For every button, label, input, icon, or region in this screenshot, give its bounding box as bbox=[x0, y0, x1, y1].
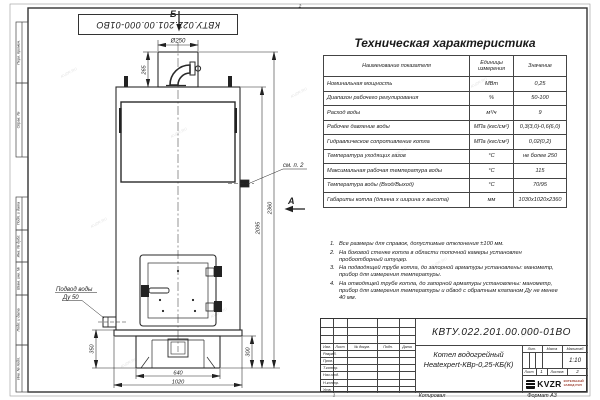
scale-value: 1:10 bbox=[562, 352, 588, 368]
svg-text:Инв. № подл.: Инв. № подл. bbox=[16, 357, 20, 380]
note-item: 4.На отводящей трубе котла, до запорной … bbox=[330, 281, 563, 302]
door-hinge-top bbox=[206, 268, 214, 276]
kvzr-logo-icon bbox=[526, 380, 535, 389]
col-data: Дата bbox=[399, 343, 415, 350]
note-item: 2.На боковой стенке котла в области топо… bbox=[330, 250, 563, 264]
sheets-value: 2 bbox=[567, 368, 588, 375]
col-docnum: № докум. bbox=[347, 343, 377, 350]
table-row: Максимальная рабочая температура воды°С1… bbox=[324, 164, 567, 179]
svg-text:Перв. примен.: Перв. примен. bbox=[16, 40, 20, 65]
boiler-front-view bbox=[98, 42, 254, 368]
sheet-label: Лист bbox=[522, 368, 536, 375]
dim-2360: 2360 bbox=[268, 201, 274, 215]
water-inlet-label-1: Подвод воды bbox=[56, 287, 93, 293]
drawing-sheet: KVZR.RU KVZR.RU KVZR.RU KVZR.RU KVZR.RU … bbox=[0, 0, 600, 400]
table-row: Гидравлическое сопротивление котлаМПа (к… bbox=[324, 135, 567, 150]
scale-label: Масштаб bbox=[562, 345, 588, 352]
door-handle-hub bbox=[141, 285, 149, 297]
kvzr-logo-text: KVZR bbox=[537, 379, 561, 389]
door-handle bbox=[149, 288, 169, 293]
svg-text:Справ. №: Справ. № bbox=[16, 112, 20, 129]
doc-number-rotated: КВТУ.022.201.00.000-01ВО bbox=[96, 20, 220, 30]
table-row: Рабочее давление водыМПа (кгс/см²)0,3(3,… bbox=[324, 120, 567, 135]
svg-text:Инв. № дубл.: Инв. № дубл. bbox=[16, 235, 20, 258]
mass-label: Масса bbox=[542, 345, 562, 352]
doc-number-box-rotated: КВТУ.022.201.00.000-01ВО bbox=[78, 14, 238, 35]
view-a-arrow bbox=[285, 206, 306, 212]
panel-clamp-left bbox=[119, 108, 122, 133]
door-hinge-bottom bbox=[206, 303, 214, 311]
svg-text:Взам. инв. №: Взам. инв. № bbox=[16, 267, 20, 290]
note-item: 3.На подводящей трубе котла, до запорной… bbox=[330, 265, 563, 279]
table-row: Температура уходящих газов°Сне более 250 bbox=[324, 149, 567, 164]
view-a-label: А bbox=[287, 196, 295, 206]
table-row: Габариты котла (длинна х ширина х высота… bbox=[324, 193, 567, 208]
col-list: Лист bbox=[333, 343, 347, 350]
svg-text:Подп. и дата: Подп. и дата bbox=[16, 202, 20, 225]
organization-cell: KVZR КОТЕЛЬНЫЙ ЗАВОД РЭП bbox=[522, 375, 588, 393]
dim-300: 300 bbox=[246, 346, 252, 356]
table-row: Диапазон рабочего регулирования%50-100 bbox=[324, 91, 567, 106]
col-podp: Подп. bbox=[377, 343, 399, 350]
col-header-units: Единицы измерения bbox=[470, 56, 514, 77]
col-header-value: Значение bbox=[514, 56, 567, 77]
svg-text:Подп. и дата: Подп. и дата bbox=[16, 308, 20, 331]
row-prov: Пров. bbox=[321, 357, 349, 364]
title-block: Изм. Лист № докум. Подп. Дата Разраб. Пр… bbox=[320, 318, 587, 392]
water-inlet-label-2: Ду 50 bbox=[62, 295, 79, 301]
sheets-label: Листов bbox=[547, 368, 567, 375]
table-row: Номинальная мощностьМВт0,25 bbox=[324, 77, 567, 92]
lit-label: Лит. bbox=[522, 345, 542, 352]
lifting-lug-right bbox=[228, 76, 232, 87]
dimension-labels: Б А Ø250 265 2095 2360 350 300 640 1020 … bbox=[56, 9, 304, 386]
row-utv: Утв. bbox=[321, 386, 349, 393]
product-name: Котел водогрейный Heatexpert-КВр-0,25-КБ… bbox=[415, 345, 522, 375]
zone-mark-bottom: 1 bbox=[333, 393, 336, 398]
lifting-lug-left bbox=[124, 76, 128, 87]
furnace-door bbox=[140, 255, 222, 326]
table-row: Температура воды (Вход/Выход)°С70/95 bbox=[324, 178, 567, 193]
sheet-value: 1 bbox=[536, 368, 547, 375]
flue-elbow bbox=[166, 62, 201, 86]
dim-2095: 2095 bbox=[256, 221, 262, 235]
row-nkontr: Н.контр. bbox=[321, 379, 349, 386]
panel-clamp-right bbox=[234, 108, 237, 133]
dim-265: 265 bbox=[142, 64, 148, 75]
col-header-name: Наименование показателя bbox=[324, 56, 470, 77]
note-item: 1.Все размеры для справок, допустимые от… bbox=[330, 241, 563, 248]
dim-640: 640 bbox=[173, 371, 183, 377]
row-nachotd: Нач.отд. bbox=[321, 371, 349, 379]
row-tkontr: Т.контр. bbox=[321, 364, 349, 371]
product-name-line1: Котел водогрейный bbox=[433, 350, 503, 360]
table-row: Расход водым³/ч9 bbox=[324, 106, 567, 121]
tech-table-header-row: Наименование показателя Единицы измерени… bbox=[324, 56, 567, 77]
notes-list: 1.Все размеры для справок, допустимые от… bbox=[330, 241, 563, 304]
dim-diameter: Ø250 bbox=[170, 39, 186, 45]
tech-table: Наименование показателя Единицы измерени… bbox=[323, 55, 567, 208]
zone-mark-top: 2 bbox=[298, 3, 302, 8]
water-inlet-fitting bbox=[98, 317, 126, 327]
see-note-label: см. п. 2 bbox=[283, 163, 304, 169]
company-name: КОТЕЛЬНЫЙ ЗАВОД РЭП bbox=[564, 380, 584, 388]
product-name-line2: Heatexpert-КВр-0,25-КБ(К) bbox=[424, 360, 514, 370]
left-frame-stamp-labels: Перв. примен. Справ. № Подп. и дата Инв.… bbox=[16, 40, 20, 380]
col-izm: Изм. bbox=[321, 343, 333, 350]
dim-350: 350 bbox=[90, 343, 96, 353]
dim-1020: 1020 bbox=[172, 380, 185, 386]
copied-label: Копировал bbox=[419, 393, 446, 399]
format-label: Формат А3 bbox=[527, 393, 557, 399]
tech-table-title: Техническая характеристика bbox=[325, 36, 565, 50]
title-block-doc-number: КВТУ.022.201.00.000-01ВО bbox=[415, 319, 588, 345]
row-razrab: Разраб. bbox=[321, 350, 349, 357]
